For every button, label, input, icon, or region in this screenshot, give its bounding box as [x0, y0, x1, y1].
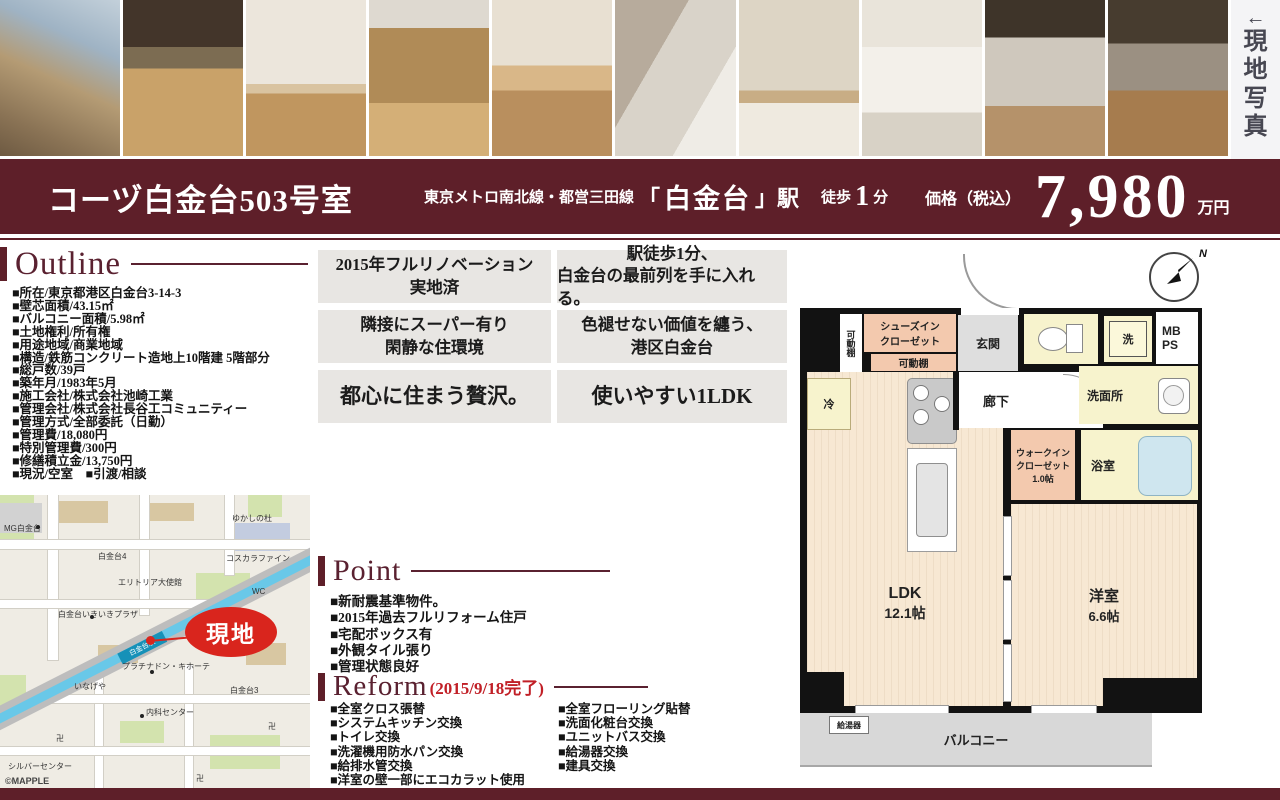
flyer-page: { "photo_panel": { "arrow": "←", "side_c… — [0, 0, 1280, 800]
toilet-tank-icon — [1066, 324, 1083, 353]
feature-line: 駅徒歩1分、 — [627, 243, 718, 265]
side-label-char: 写 — [1244, 85, 1268, 113]
list-item: ■ユニットバス交換 — [558, 730, 783, 744]
room-label: 洋室 — [1089, 585, 1119, 606]
feature-line: 隣接にスーパー有り — [360, 314, 508, 336]
list-item: ■壁芯面積/43.15㎡ — [12, 300, 312, 313]
map-label: ゆかしの杜 — [232, 513, 272, 524]
feature-box: 使いやすい1LDK — [557, 370, 787, 423]
map-poi-dot — [90, 615, 94, 619]
sliding-door — [1003, 644, 1012, 702]
map-temple-mark: 卍 — [56, 733, 64, 744]
room-label: 冷 — [824, 396, 835, 412]
list-item: ■2015年過去フルリフォーム住戸 — [330, 610, 620, 626]
room-label: バルコニー — [944, 730, 1009, 749]
list-item: ■用途地域/商業地域 — [12, 339, 312, 352]
wall-corner — [800, 672, 844, 713]
room-label: シューズイン — [880, 318, 940, 333]
map-road — [48, 495, 58, 660]
heading-accent-bar — [318, 673, 325, 701]
wall-corner — [1103, 678, 1197, 713]
ldk-label-group: LDK 12.1帖 — [884, 585, 925, 623]
map-label: 白金台4 — [98, 551, 126, 562]
price-label: 価格（税込） — [925, 185, 1021, 209]
site-location-badge: 現地 — [185, 607, 277, 657]
map-building — [52, 501, 108, 523]
photo-strip — [0, 0, 1228, 156]
map-label: エリトリア大使館 — [118, 577, 182, 588]
heading-text: Outline — [15, 248, 121, 281]
list-item: ■管理費/18,080円 — [12, 429, 312, 442]
toilet-icon — [1038, 327, 1068, 351]
map-label: 白金台3 — [230, 685, 258, 696]
compass-icon — [1147, 250, 1201, 304]
room-label: クローゼット — [1016, 459, 1070, 472]
kitchen-counter — [907, 448, 957, 552]
photo-bathroom — [615, 0, 735, 156]
mb-ps-space: MB PS — [1156, 312, 1198, 364]
heading-rule — [411, 570, 610, 572]
map-label: 白金台いきいきプラザ — [58, 609, 138, 620]
room-label: ウォークイン — [1016, 446, 1070, 459]
room-label: 給湯器 — [837, 720, 861, 731]
heading-rule — [554, 686, 648, 688]
list-item: ■システムキッチン交換 — [330, 716, 555, 730]
outline-heading: Outline — [0, 247, 308, 281]
list-item: ■外観タイル張り — [330, 643, 620, 659]
map-poi-dot — [36, 525, 40, 529]
feature-line: 都心に住まう贅沢。 — [340, 382, 529, 410]
room-label: 浴室 — [1091, 457, 1115, 474]
header-bar: コーヅ白金台503号室 東京メトロ南北線・都営三田線 「 白金台 」駅 徒歩 1… — [0, 159, 1280, 234]
photo-mailboxes — [1108, 0, 1228, 156]
station-name: 白金台 — [664, 177, 751, 216]
bathtub-icon — [1138, 436, 1192, 496]
room-label: MB — [1162, 324, 1181, 338]
sliding-door — [1003, 516, 1012, 576]
reform-list-left: ■全室クロス張替■システムキッチン交換■トイレ交換■洗濯機用防水パン交換■給排水… — [330, 702, 555, 787]
list-item: ■修繕積立金/13,750円 — [12, 455, 312, 468]
feature-line: 使いやすい1LDK — [591, 382, 752, 410]
heading-rule — [131, 263, 308, 265]
list-item: ■所在/東京都港区白金台3-14-3 — [12, 287, 312, 300]
list-item: ■給排水管交換 — [330, 759, 555, 773]
list-item: ■新耐震基準物件。 — [330, 594, 620, 610]
entrance-genkan: 玄関 — [958, 315, 1018, 371]
list-item: ■トイレ交換 — [330, 730, 555, 744]
list-item: ■全室フローリング貼替 — [558, 702, 783, 716]
map-label: プラチナドン・キホーテ — [122, 661, 210, 672]
photo-toilet — [862, 0, 982, 156]
feature-line: 色褪せない価値を纏う、 — [581, 314, 763, 336]
heading-accent-bar — [0, 247, 7, 281]
list-item: ■バルコニー面積/5.98㎡ — [12, 313, 312, 326]
price-block: 価格（税込） 7,980 万円 — [925, 159, 1230, 234]
list-item: ■給湯器交換 — [558, 745, 783, 759]
room-label: PS — [1162, 338, 1178, 352]
price-unit: 万円 — [1198, 194, 1230, 218]
bedroom: 洋室 6.6帖 — [1011, 504, 1197, 706]
list-item: ■洗面化粧台交換 — [558, 716, 783, 730]
map-temple-mark: 卍 — [268, 721, 276, 732]
reform-heading: Reform (2015/9/18完了) — [318, 672, 648, 701]
reform-completion-note: (2015/9/18完了) — [430, 674, 544, 699]
list-item: ■洗濯機用防水パン交換 — [330, 745, 555, 759]
bottom-bar — [0, 788, 1280, 800]
room-label: 廊下 — [983, 391, 1009, 410]
map-label: シルバーセンター — [8, 761, 72, 772]
walk-label: 徒歩 — [821, 186, 851, 207]
entrance-door-arc — [963, 254, 1019, 310]
washer-space: 洗 — [1104, 316, 1152, 362]
photo-kitchen — [369, 0, 489, 156]
area-map: 白金台駅 MG白金台 白金台4 ゆかしの杜 コスカラファイン エリトリア大使館 … — [0, 495, 310, 790]
fridge-space: 冷 — [807, 378, 851, 430]
kitchen-sink-icon — [916, 463, 948, 537]
list-item: ■特別管理費/300円 — [12, 442, 312, 455]
sink-icon — [1158, 378, 1190, 414]
entrance-opening — [961, 308, 1019, 315]
room-label: 6.6帖 — [1088, 606, 1119, 625]
map-road — [140, 495, 149, 615]
feature-grid: 2015年フルリノベーション 実地済 駅徒歩1分、 白金台の最前列を手に入れる。… — [318, 250, 786, 423]
list-item: ■全室クロス張替 — [330, 702, 555, 716]
property-title: コーヅ白金台503号室 — [48, 175, 353, 220]
walk-in-closet: ウォークイン クローゼット 1.0帖 — [1011, 430, 1075, 500]
room-label: クローゼット — [880, 333, 940, 348]
bracket-close: 」駅 — [755, 181, 799, 213]
movable-shelf-vertical: 可動棚 — [840, 314, 862, 372]
feature-line: 実地済 — [410, 277, 460, 299]
room-label: 12.1帖 — [884, 603, 925, 623]
room-label: 洗面所 — [1087, 387, 1123, 404]
map-poi-dot — [140, 714, 144, 718]
list-item: ■建具交換 — [558, 759, 783, 773]
list-item: ■土地権利/所有権 — [12, 326, 312, 339]
site-dot — [146, 636, 155, 645]
map-label: いなげや — [74, 681, 106, 692]
toilet-room — [1024, 314, 1098, 364]
feature-box: 都心に住まう贅沢。 — [318, 370, 551, 423]
washroom: 洗面所 — [1079, 366, 1198, 424]
map-credit: ©MAPPLE — [5, 776, 49, 786]
map-label: コスカラファイン — [226, 553, 290, 564]
point-list: ■新耐震基準物件。■2015年過去フルリフォーム住戸■宅配ボックス有■外観タイル… — [330, 594, 620, 675]
list-item: ■宅配ボックス有 — [330, 627, 620, 643]
list-item: ■洋室の壁一部にエコカラット使用 — [330, 773, 555, 787]
price-value: 7,980 — [1035, 166, 1190, 228]
site-photo-side-label: ← 現 地 写 真 — [1231, 0, 1280, 164]
feature-line: 2015年フルリノベーション — [336, 254, 534, 276]
feature-line: 港区白金台 — [631, 337, 714, 359]
reform-list-right: ■全室フローリング貼替■洗面化粧台交換■ユニットバス交換■給湯器交換■建具交換 — [558, 702, 783, 773]
photo-entrance-lobby — [123, 0, 243, 156]
room-label: 玄関 — [976, 335, 1000, 352]
rail-lines: 東京メトロ南北線・都営三田線 — [424, 186, 634, 207]
map-temple-mark: 卍 — [196, 773, 204, 784]
room-label: LDK — [889, 585, 922, 603]
map-poi-dot — [150, 670, 154, 674]
sliding-door — [1003, 580, 1012, 640]
compass-n-label: N — [1199, 248, 1207, 260]
room-label: 1.0帖 — [1032, 472, 1054, 485]
photo-vanity — [739, 0, 859, 156]
map-label: 内科センター — [146, 707, 194, 718]
heading-text: Reform — [333, 672, 428, 701]
map-road — [40, 695, 310, 703]
room-label: 洗 — [1123, 331, 1134, 347]
outline-list: ■所在/東京都港区白金台3-14-3■壁芯面積/43.15㎡■バルコニー面積/5… — [12, 287, 312, 481]
map-road — [0, 540, 310, 549]
bracket-open: 「 — [638, 181, 660, 213]
walk-unit: 分 — [873, 186, 888, 207]
photo-building-exterior — [0, 0, 120, 156]
map-label: WC — [252, 587, 265, 596]
bathroom: 浴室 — [1081, 430, 1198, 500]
shoes-in-closet: シューズイン クローゼット — [864, 314, 956, 352]
stove-icon — [907, 378, 957, 444]
station-access: 東京メトロ南北線・都営三田線 「 白金台 」駅 徒歩 1 分 — [424, 159, 888, 234]
feature-box: 2015年フルリノベーション 実地済 — [318, 250, 551, 303]
left-arrow-icon: ← — [1246, 8, 1266, 28]
walk-minutes: 1 — [855, 181, 869, 213]
point-heading: Point — [318, 556, 610, 586]
heading-accent-bar — [318, 556, 325, 586]
side-label-char: 現 — [1244, 28, 1268, 56]
map-park — [120, 721, 164, 743]
photo-empty-room — [246, 0, 366, 156]
feature-box: 色褪せない価値を纏う、 港区白金台 — [557, 310, 787, 363]
map-building — [150, 503, 194, 521]
list-item: ■現況/空室 ■引渡/相談 — [12, 468, 312, 481]
feature-box: 駅徒歩1分、 白金台の最前列を手に入れる。 — [557, 250, 787, 303]
feature-line: 白金台の最前列を手に入れる。 — [557, 265, 787, 310]
feature-line: 閑静な住環境 — [385, 337, 484, 359]
heading-text: Point — [333, 556, 401, 586]
movable-shelf: 可動棚 — [871, 354, 956, 371]
header-rule — [0, 238, 1280, 240]
feature-box: 隣接にスーパー有り 閑静な住環境 — [318, 310, 551, 363]
photo-delivery-lockers — [985, 0, 1105, 156]
map-road — [0, 747, 310, 755]
side-label-char: 地 — [1244, 56, 1268, 84]
water-heater: 給湯器 — [829, 716, 869, 734]
photo-living-room — [492, 0, 612, 156]
washer-icon: 洗 — [1109, 321, 1147, 357]
map-label: MG白金台 — [4, 523, 41, 534]
room-label: 可動棚 — [899, 355, 929, 370]
side-label-char: 真 — [1244, 113, 1268, 141]
room-label: 可動棚 — [845, 330, 858, 357]
floor-plan: N 可動棚 シューズイン クローゼット 可動棚 玄関 洗 MB PS LDK 1… — [795, 248, 1210, 788]
map-road — [185, 665, 193, 790]
